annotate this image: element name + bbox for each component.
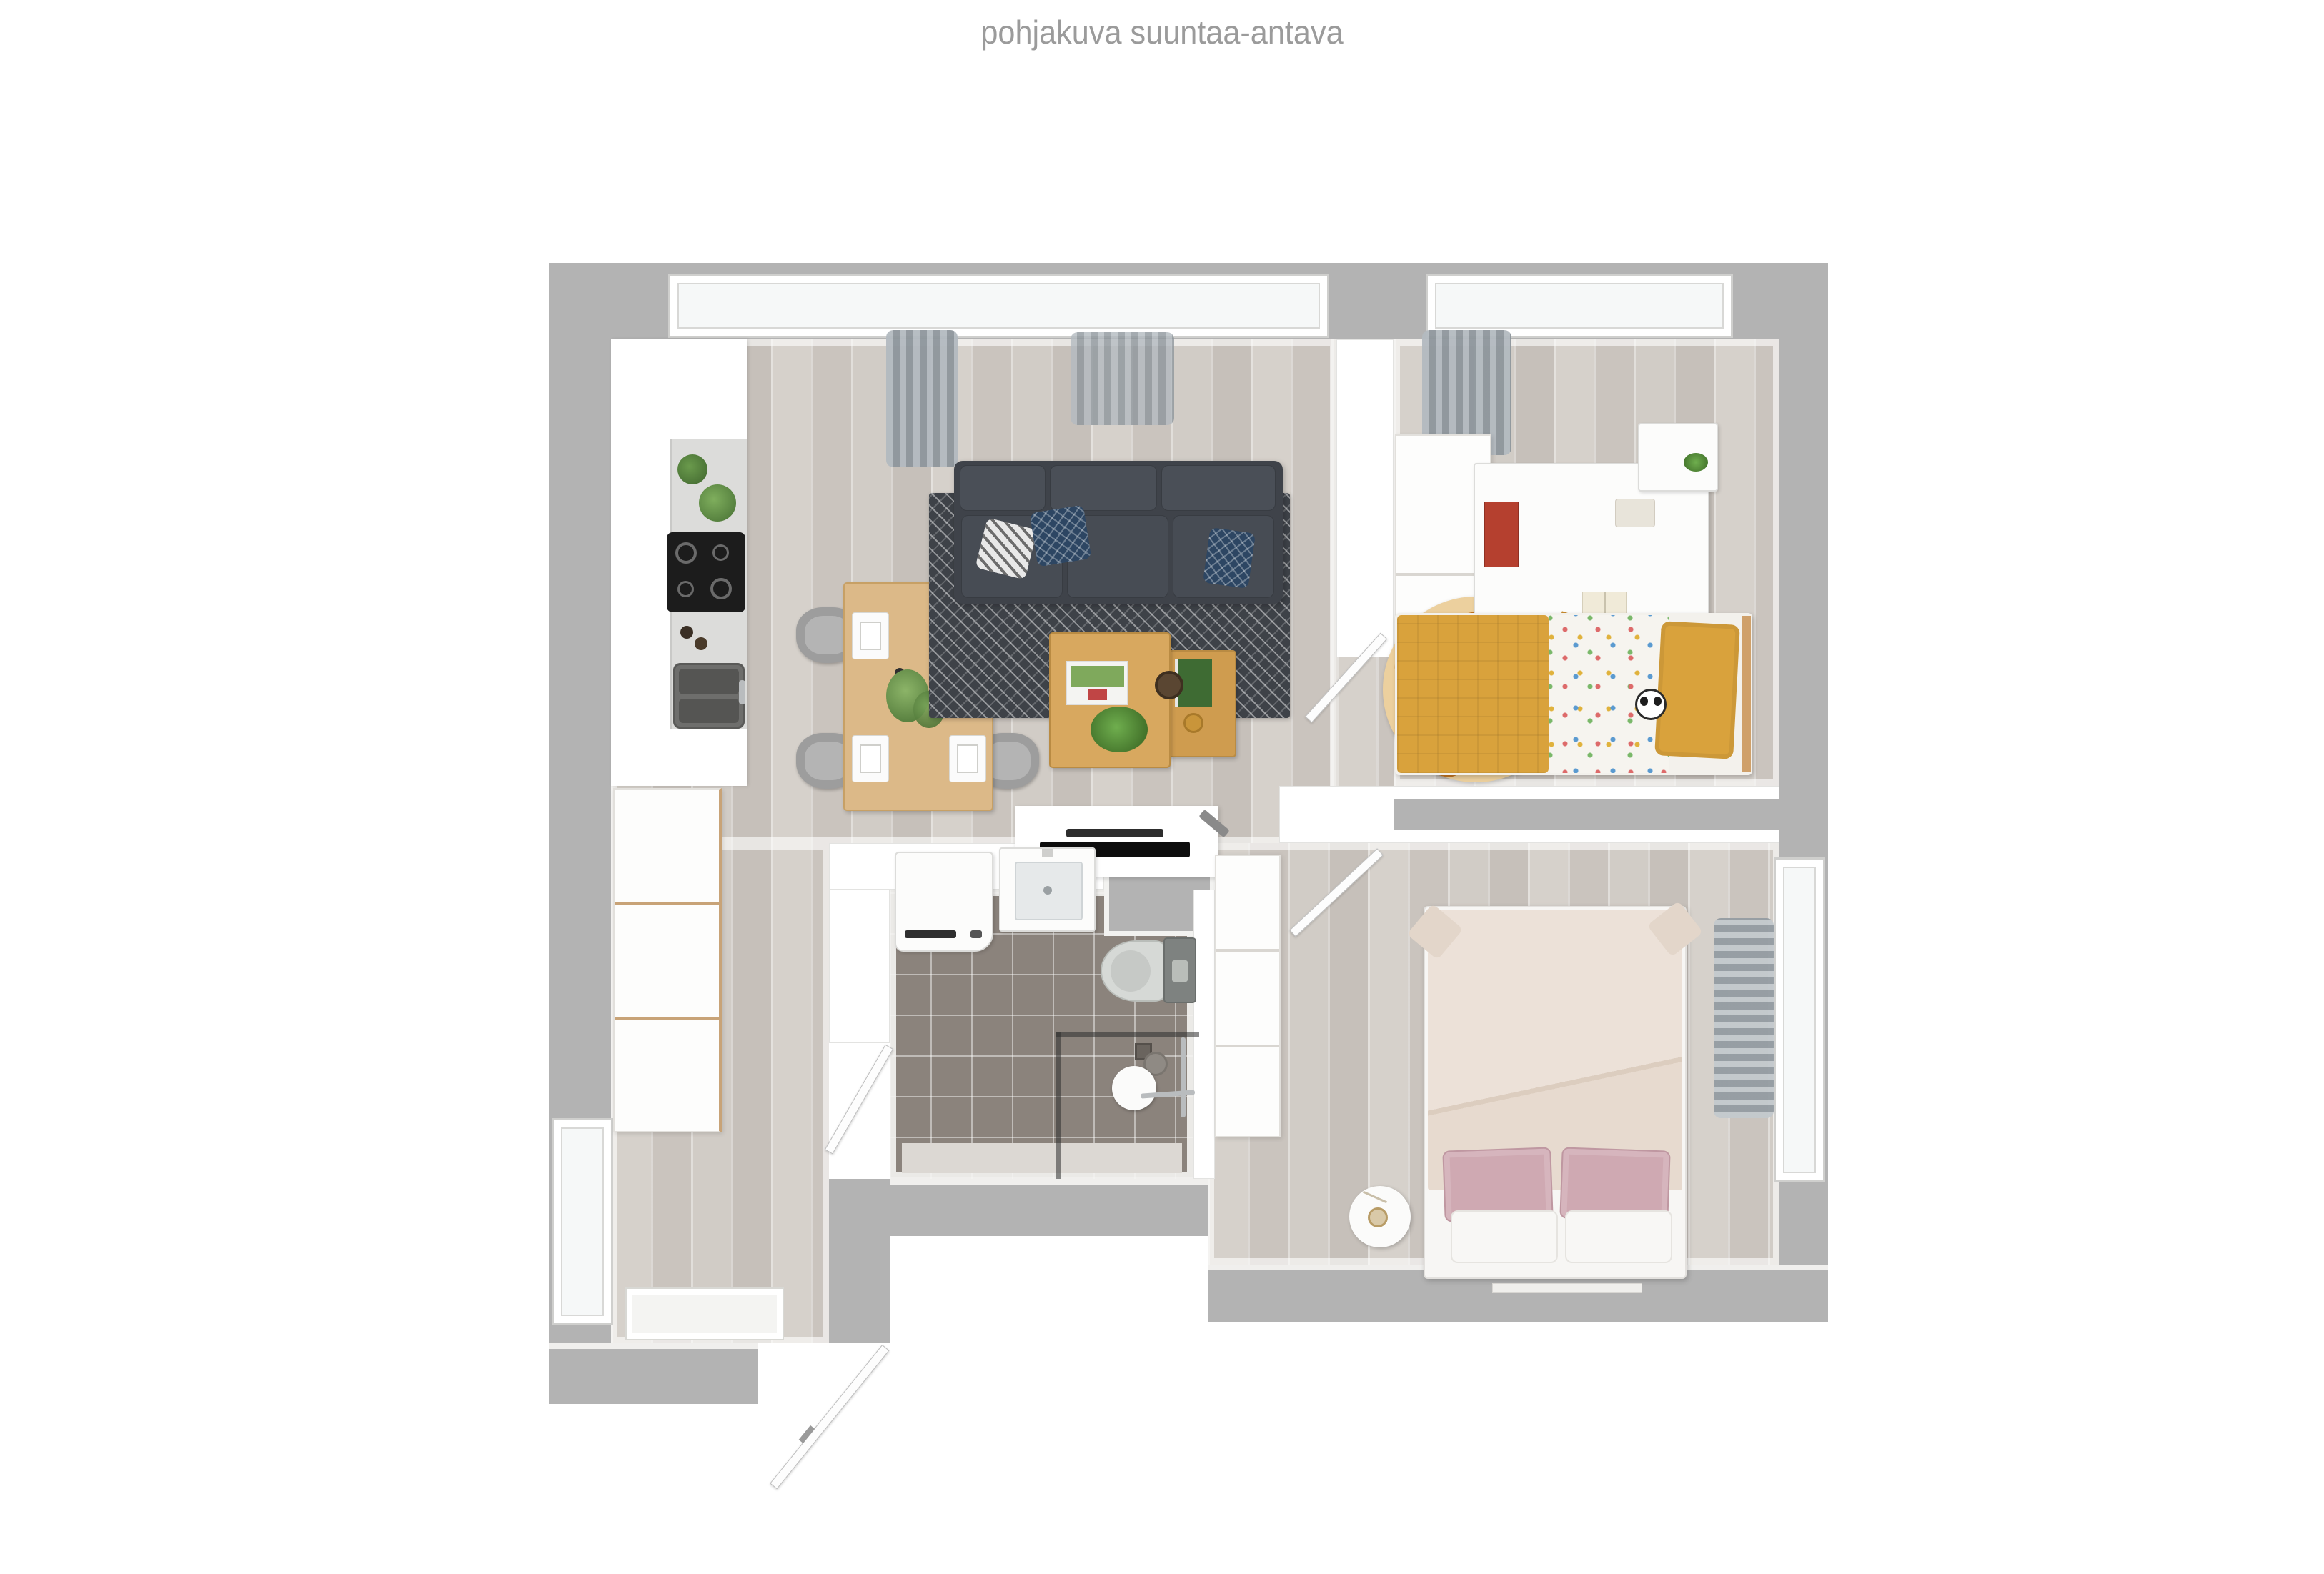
floor-plan-page: pohjakuva suuntaa-antava (0, 0, 2324, 1574)
bathroom-door (825, 1045, 893, 1155)
white-pillow (1451, 1210, 1558, 1263)
doormat (625, 1287, 784, 1340)
curtain-bedroom (1714, 918, 1774, 1118)
floor-plan (0, 0, 2324, 1574)
stove-burner (712, 544, 729, 561)
gold-cup (1183, 713, 1203, 733)
sink-bowl (679, 669, 739, 694)
door-handle-icon (799, 1425, 815, 1443)
toilet-tank (1163, 937, 1196, 1003)
lamp-wire (1363, 1191, 1387, 1203)
bedside-table (1349, 1186, 1411, 1247)
kids-bed (1395, 613, 1752, 775)
coffee-table-large (1049, 632, 1171, 768)
round-tray (1155, 671, 1183, 699)
wall-outer-bottom-entry (549, 1343, 758, 1404)
window-living (668, 274, 1329, 338)
sofa-back-cushion (960, 465, 1046, 511)
magazine (1066, 661, 1128, 705)
place-setting (852, 735, 889, 782)
washbasin (999, 847, 1096, 932)
curtain-living-left (886, 330, 958, 467)
hall-closet (1215, 855, 1281, 1137)
shower-riser-rail (1181, 1037, 1186, 1117)
stove-burner (677, 581, 694, 597)
kitchen-bottle (695, 637, 707, 650)
magazine-under-bed (1492, 1283, 1642, 1293)
kids-pillow (1654, 621, 1740, 759)
window-bedroom (1774, 857, 1825, 1182)
toilet-seat (1111, 950, 1151, 992)
window-kids (1426, 274, 1733, 338)
shower-glass-side (1056, 1032, 1061, 1179)
kids-bed-headboard (1742, 616, 1751, 772)
basin-drain (1043, 886, 1052, 895)
tv-stand (1066, 829, 1163, 837)
sofa-back-cushion (1050, 465, 1157, 511)
shower-shelf (1112, 1066, 1156, 1110)
white-pillow (1565, 1210, 1672, 1263)
kids-drawer-unit (1638, 423, 1718, 492)
bedside-lamp (1368, 1207, 1388, 1227)
red-book (1484, 502, 1519, 567)
cooktop (667, 532, 745, 612)
coffee-table-plant (1091, 707, 1148, 752)
counter-plant-1 (677, 454, 707, 484)
sink-faucet (739, 680, 745, 704)
wall-kids-bedroom-core (1394, 799, 1779, 830)
toilet-bowl (1101, 940, 1172, 1002)
front-door (770, 1345, 889, 1489)
place-setting (949, 735, 986, 782)
shower-glass-top (1056, 1032, 1199, 1037)
entry-wardrobe (613, 788, 722, 1132)
throw-pillow-navy (1203, 527, 1256, 589)
wall-corridor-right-lower (829, 1179, 890, 1343)
wall-bathroom-left (829, 890, 890, 1043)
throw-pillow-navy (1030, 505, 1092, 567)
trailing-plant (1684, 453, 1708, 472)
wall-outer-bottom-bathroom (890, 1179, 1208, 1236)
double-bed (1424, 906, 1687, 1279)
kitchen-bottle (680, 626, 693, 639)
bed-duvet (1428, 910, 1682, 1190)
window-entry (552, 1118, 613, 1325)
washing-machine-panel (905, 930, 956, 938)
sink-bowl (679, 699, 739, 723)
place-setting (852, 612, 889, 659)
basin-faucet (1042, 849, 1053, 857)
panda-toy (1635, 689, 1667, 720)
desk-tidy (1615, 499, 1655, 527)
wall-living-kids (1336, 339, 1394, 657)
bathroom-entry-strip (902, 1143, 1182, 1173)
stove-burner (710, 578, 732, 599)
washing-machine (895, 852, 993, 952)
stove-burner (675, 542, 697, 564)
counter-plant-2 (699, 484, 736, 522)
toilet-flush-button (1172, 960, 1188, 982)
sofa-back-cushion (1161, 465, 1276, 511)
curtain-living-right (1071, 332, 1174, 425)
kids-bed-quilt (1397, 615, 1549, 773)
washing-machine-knob (970, 930, 982, 938)
kitchen-sink (673, 663, 745, 729)
